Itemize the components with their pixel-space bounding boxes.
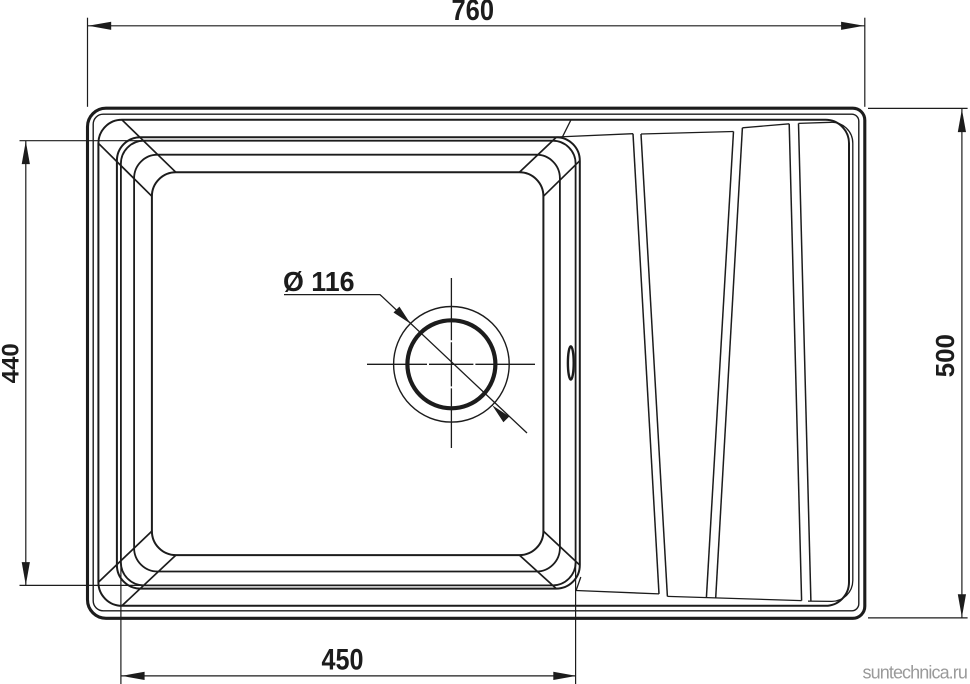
svg-text:suntechnica.ru: suntechnica.ru (863, 662, 967, 682)
svg-text:760: 760 (452, 0, 495, 27)
svg-text:440: 440 (0, 343, 25, 383)
svg-text:Ø 116: Ø 116 (283, 266, 355, 297)
svg-text:500: 500 (930, 334, 960, 377)
svg-text:450: 450 (322, 643, 364, 676)
